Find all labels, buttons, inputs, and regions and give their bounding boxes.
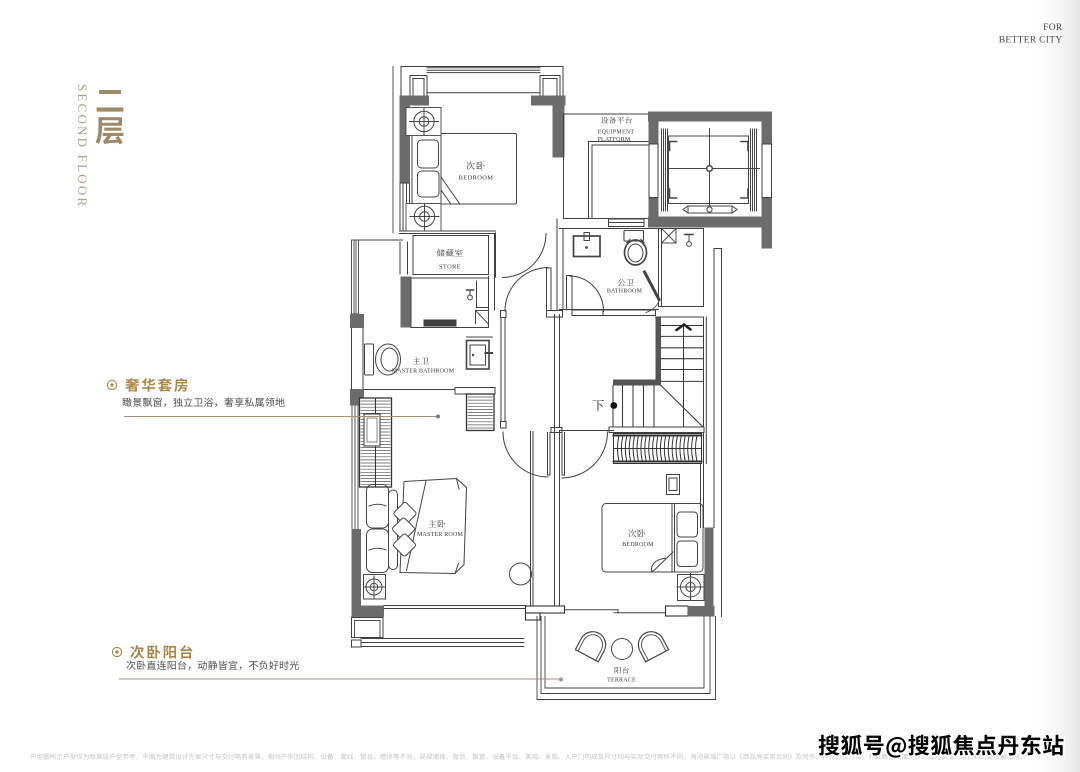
svg-text:MASTER BATHROOM: MASTER BATHROOM <box>392 369 455 375</box>
svg-text:BATHROOM: BATHROOM <box>607 289 643 295</box>
svg-text:SECOND FLOOR: SECOND FLOOR <box>75 84 90 208</box>
svg-text:EQUIPMENT: EQUIPMENT <box>598 130 635 136</box>
svg-text:PLATFORM: PLATFORM <box>598 137 631 143</box>
svg-text:BETTER CITY: BETTER CITY <box>999 36 1063 46</box>
svg-text:TERRACE: TERRACE <box>607 678 636 684</box>
svg-text:STORE: STORE <box>439 264 461 271</box>
svg-text:BEDROOM: BEDROOM <box>459 175 494 182</box>
svg-text:BEDROOM: BEDROOM <box>622 542 654 548</box>
svg-text:MASTER ROOM: MASTER ROOM <box>417 532 464 538</box>
svg-text:FOR: FOR <box>1043 23 1063 33</box>
